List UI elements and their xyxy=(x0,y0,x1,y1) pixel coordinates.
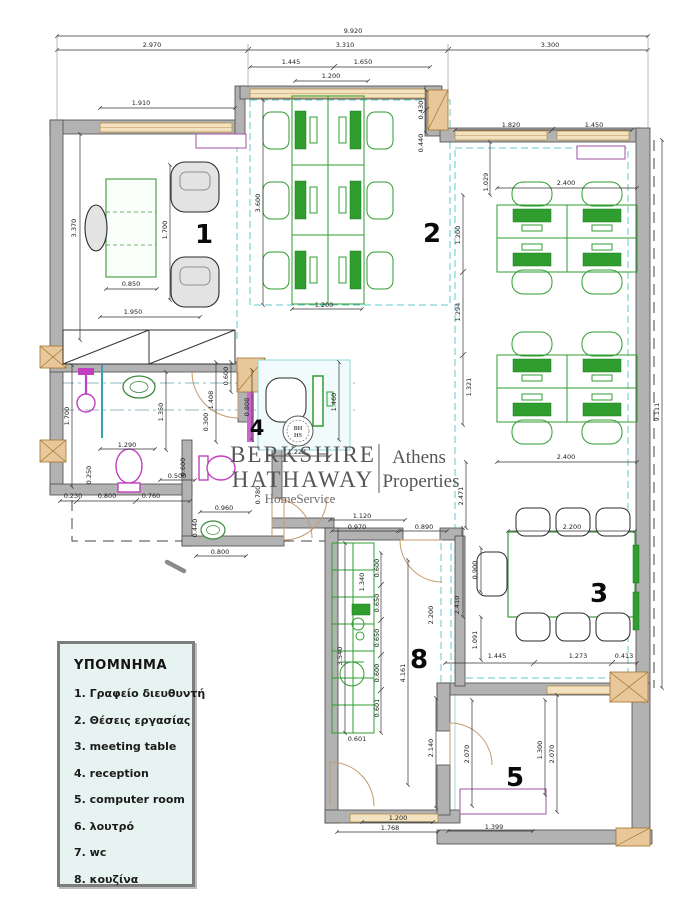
dimension-label: 1.200 xyxy=(322,72,341,80)
chair xyxy=(512,270,552,294)
logo-line-berkshire: BERKSHIRE xyxy=(230,442,376,467)
chair xyxy=(367,182,393,219)
cabinet xyxy=(577,146,625,159)
legend-box: ΥΠΟΜΝΗΜΑ 1. Γραφείο διευθυντή 2. Θέσεις … xyxy=(57,641,195,887)
workstation-cluster-top xyxy=(497,182,637,294)
legend-item-2: 2. Θέσεις εργασίας xyxy=(74,714,192,727)
meeting-table xyxy=(508,532,635,617)
dimension-label: 3.600 xyxy=(254,194,262,213)
legend-item-6: 6. λουτρό xyxy=(74,820,192,833)
room3-meeting-table xyxy=(477,508,639,641)
toilet-tank xyxy=(118,483,140,492)
chair xyxy=(367,252,393,289)
dimension-label: 0.890 xyxy=(415,523,434,531)
dimension-label: 2.070 xyxy=(548,745,556,764)
toilet xyxy=(116,449,142,483)
chair xyxy=(263,182,289,219)
dimension-label: 1.460 xyxy=(330,393,338,412)
dimension-label: 2.200 xyxy=(563,523,582,531)
room-number-8: 8 xyxy=(410,645,428,675)
dimension-label: 2.970 xyxy=(143,41,162,49)
seal-text: HS xyxy=(294,433,303,439)
column xyxy=(616,828,650,846)
dimension-label: 2.400 xyxy=(557,453,576,461)
cabinet xyxy=(196,134,246,148)
legend-item-4: 4. reception xyxy=(74,767,192,780)
chair xyxy=(582,332,622,356)
chair xyxy=(263,252,289,289)
room-number-1: 1 xyxy=(195,220,213,250)
logo-line-athens: Athens xyxy=(392,447,446,468)
legend-title: ΥΠΟΜΝΗΜΑ xyxy=(74,658,192,673)
dimension-label: 3.370 xyxy=(70,219,78,238)
dimension-label: 1.290 xyxy=(118,441,137,449)
dimension-label: 0.440 xyxy=(417,134,425,153)
chair xyxy=(266,378,306,422)
logo-line-hathaway: HATHAWAY xyxy=(232,467,374,492)
brand-logo: BERKSHIRE HATHAWAY HomeService Athens Pr… xyxy=(230,442,459,506)
dimension-label: 0.650 xyxy=(373,594,381,613)
dimension-label: 2.400 xyxy=(557,179,576,187)
dimension-label: 0.900 xyxy=(471,561,479,580)
dimension-label: 0.440 xyxy=(191,519,199,538)
dimension-label: 0.960 xyxy=(215,504,234,512)
workstation-cluster-bottom xyxy=(497,332,637,444)
monitor xyxy=(583,403,621,416)
dimension-label: 1.910 xyxy=(132,99,151,107)
armchair xyxy=(171,162,219,212)
room5-computer-room xyxy=(460,789,546,814)
chair xyxy=(556,613,590,641)
dimension-label: 9.111 xyxy=(653,403,661,422)
legend-item-5: 5. computer room xyxy=(74,793,192,806)
dimension-label: 0.600 xyxy=(179,458,187,477)
logo-line-homeservice: HomeService xyxy=(265,491,336,506)
column xyxy=(428,90,448,130)
legend-item-1: 1. Γραφείο διευθυντή xyxy=(74,687,192,700)
dimension-label: 1.294 xyxy=(454,303,462,322)
legend-item-3: 3. meeting table xyxy=(74,740,192,753)
dimension-label: 1.445 xyxy=(282,58,301,66)
plant xyxy=(633,545,639,583)
dimension-label: 0.230 xyxy=(64,492,83,500)
chair xyxy=(582,182,622,206)
dimension-label: 0.601 xyxy=(348,735,367,743)
room-number-5: 5 xyxy=(506,763,524,793)
dimension-label: 0.600 xyxy=(222,367,230,386)
dimension-label: 2.140 xyxy=(427,739,435,758)
dimension-label: 1.340 xyxy=(358,573,366,592)
dimension-label: 0.760 xyxy=(142,492,161,500)
door-arc xyxy=(450,723,492,765)
burner xyxy=(356,632,364,640)
chair xyxy=(512,420,552,444)
legend-item-8: 8. κουζίνα xyxy=(74,873,192,886)
chair xyxy=(512,332,552,356)
dimension-label: 3.310 xyxy=(336,41,355,49)
dimension-label: 0.413 xyxy=(615,652,634,660)
column xyxy=(610,672,648,702)
dimension-label: 0.970 xyxy=(348,523,367,531)
stray-mark xyxy=(167,562,184,571)
shower xyxy=(77,394,95,412)
dimension-label: 1.300 xyxy=(536,741,544,760)
computer-table xyxy=(460,789,546,814)
desk xyxy=(106,179,156,277)
dimension-label: 1.950 xyxy=(124,308,143,316)
room-number-3: 3 xyxy=(590,579,608,609)
room-number-4: 4 xyxy=(250,416,265,440)
seal-text: BH xyxy=(294,426,303,432)
monitor xyxy=(583,209,621,222)
monitor xyxy=(583,253,621,266)
dimension-label: 1.700 xyxy=(161,221,169,240)
monitor xyxy=(583,359,621,372)
monitor xyxy=(513,359,551,372)
dimension-label: 3.540 xyxy=(336,647,344,666)
dimension-label: 0.808 xyxy=(243,398,251,417)
dimension-label: 4.161 xyxy=(399,664,407,683)
dimension-label: 1.321 xyxy=(465,378,473,397)
dimension-label: 1.029 xyxy=(482,173,490,192)
closet xyxy=(63,330,235,364)
reception-desk xyxy=(313,376,323,426)
dimension-label: 0.800 xyxy=(211,548,230,556)
dimension-label: 1.820 xyxy=(502,121,521,129)
monitor xyxy=(295,111,306,149)
chair xyxy=(367,112,393,149)
dimension-label: 1.768 xyxy=(381,824,400,832)
logo-line-properties: Properties xyxy=(382,471,459,492)
column xyxy=(40,440,66,462)
chair xyxy=(477,552,507,596)
dimension-label: 1.445 xyxy=(488,652,507,660)
dimension-label: 1.200 xyxy=(454,226,462,245)
door-arc xyxy=(400,540,442,582)
plant xyxy=(633,592,639,630)
room-number-2: 2 xyxy=(423,219,441,249)
floor-plan-page: BH HS xyxy=(0,0,689,908)
dimension-label: 0.800 xyxy=(98,492,117,500)
monitor xyxy=(513,253,551,266)
dimension-label: 1.200 xyxy=(389,814,408,822)
dimension-label: 1.408 xyxy=(207,391,215,410)
room2-workstations xyxy=(263,96,393,304)
monitor xyxy=(295,251,306,289)
dimension-label: 0.650 xyxy=(373,629,381,648)
chair xyxy=(516,613,550,641)
chair xyxy=(512,182,552,206)
monitor xyxy=(513,209,551,222)
dimension-label: 0.430 xyxy=(417,101,425,120)
dimension-label: 1.091 xyxy=(471,631,479,650)
dimension-label: 0.850 xyxy=(122,280,141,288)
dimension-label: 0.600 xyxy=(373,664,381,683)
chair xyxy=(263,112,289,149)
dimension-label: 0.601 xyxy=(373,699,381,718)
dimension-label: 1.200 xyxy=(315,301,334,309)
column xyxy=(40,346,66,368)
dimension-label: 1.700 xyxy=(63,407,71,426)
shower-head xyxy=(78,368,94,375)
dimension-label: 0.250 xyxy=(85,466,93,485)
dimension-label: 2.410 xyxy=(453,596,461,615)
chair xyxy=(596,613,630,641)
dimension-label: 1.399 xyxy=(485,823,504,831)
dimension-label: 3.300 xyxy=(541,41,560,49)
stove xyxy=(352,604,370,615)
dimension-label: 1.450 xyxy=(585,121,604,129)
dimension-label: 9.920 xyxy=(344,27,363,35)
monitor xyxy=(295,181,306,219)
dimension-label: 0.600 xyxy=(373,559,381,578)
dimension-label: 2.070 xyxy=(463,745,471,764)
monitor xyxy=(350,111,361,149)
dimension-label: 1.350 xyxy=(157,403,165,422)
dimension-label: 1.650 xyxy=(354,58,373,66)
dimension-label: 2.200 xyxy=(427,606,435,625)
chair xyxy=(582,420,622,444)
office-chair xyxy=(85,205,107,251)
chair xyxy=(596,508,630,536)
sink xyxy=(201,521,225,539)
dimension-label: 1.273 xyxy=(569,652,588,660)
sink xyxy=(123,376,155,398)
monitor xyxy=(350,251,361,289)
monitor xyxy=(513,403,551,416)
legend-item-7: 7. wc xyxy=(74,846,192,859)
armchair xyxy=(171,257,219,307)
chair xyxy=(516,508,550,536)
monitor xyxy=(350,181,361,219)
chair xyxy=(556,508,590,536)
dimension-label: 0.300 xyxy=(202,413,210,432)
dimension-label: 1.120 xyxy=(353,512,372,520)
chair xyxy=(582,270,622,294)
